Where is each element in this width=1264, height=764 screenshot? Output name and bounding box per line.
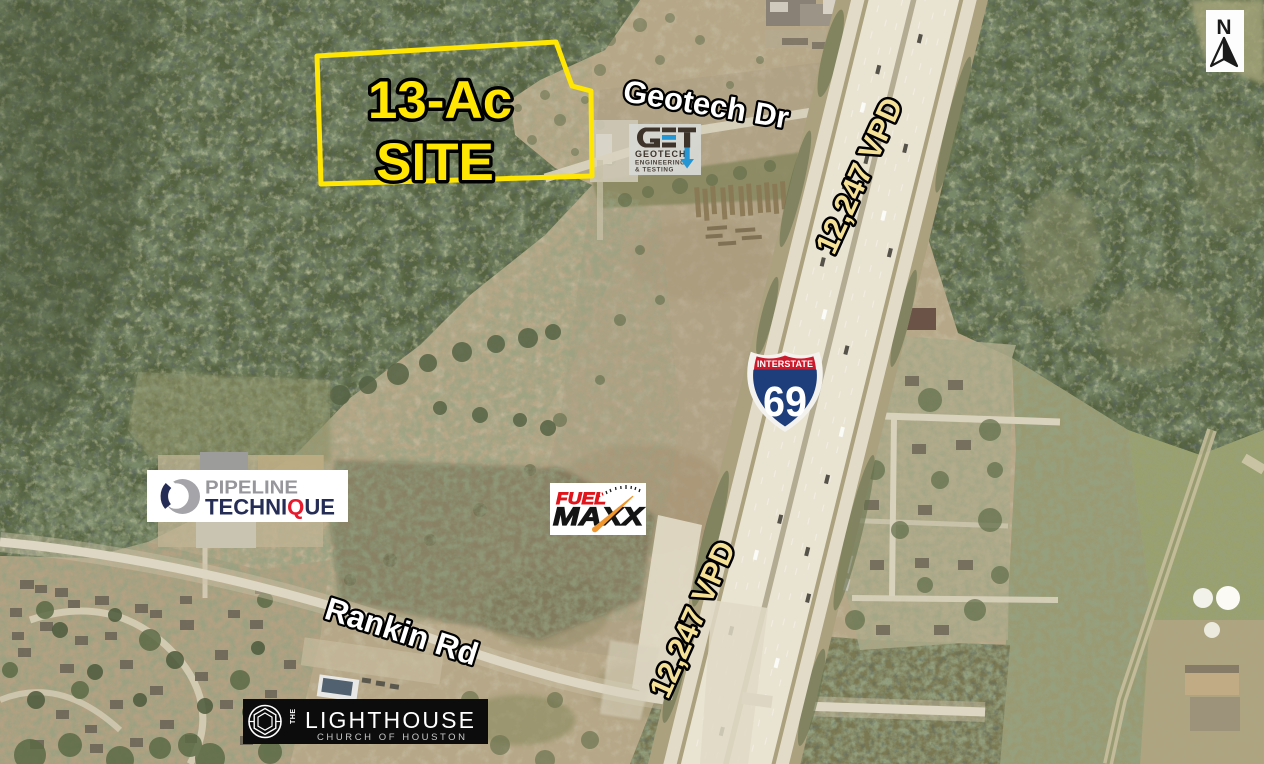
svg-text:GEOTECH: GEOTECH xyxy=(635,149,687,159)
svg-text:N: N xyxy=(1216,16,1231,39)
svg-text:TECHNIQUE: TECHNIQUE xyxy=(205,495,335,520)
svg-text:ENGINEERING: ENGINEERING xyxy=(635,160,686,167)
svg-text:INTERSTATE: INTERSTATE xyxy=(757,359,813,369)
svg-text:THE: THE xyxy=(290,709,297,725)
svg-text:13-Ac: 13-Ac xyxy=(368,71,512,130)
svg-text:LIGHTHOUSE: LIGHTHOUSE xyxy=(305,707,477,733)
svg-text:CHURCH OF HOUSTON: CHURCH OF HOUSTON xyxy=(317,732,465,743)
svg-text:69: 69 xyxy=(763,378,807,426)
svg-text:& TESTING: & TESTING xyxy=(635,167,674,174)
svg-text:SITE: SITE xyxy=(376,133,494,192)
